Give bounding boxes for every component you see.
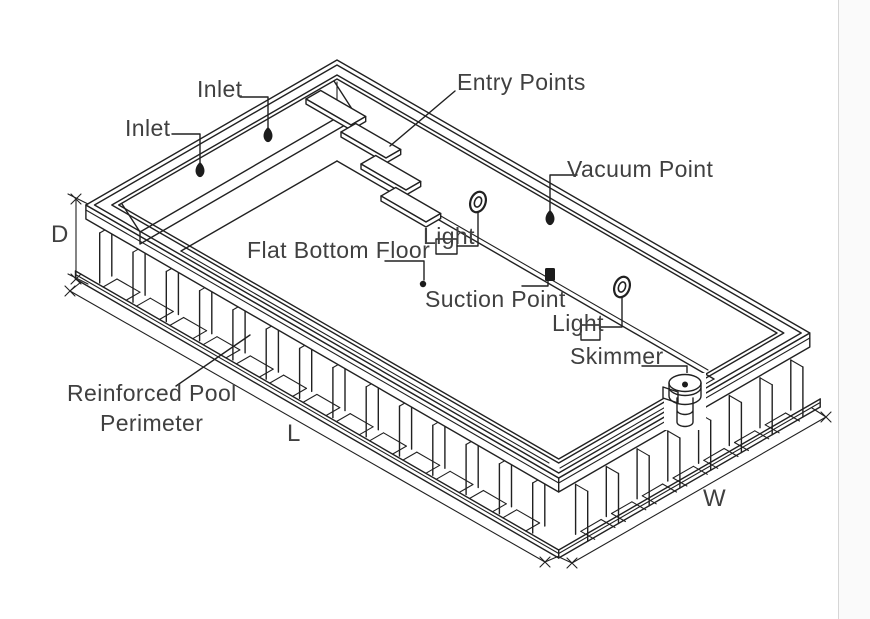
rib-line	[517, 510, 540, 523]
rib-line	[729, 396, 741, 403]
rib-line	[436, 471, 450, 479]
rib-line	[217, 337, 240, 350]
rib-line	[250, 356, 273, 369]
light-lower-label: Light	[552, 310, 604, 336]
rib-line	[637, 449, 649, 456]
inlet-left-label: Inlet	[125, 115, 171, 141]
rib-line	[370, 433, 384, 441]
rib-line	[117, 279, 140, 292]
flat-bottom-floor-label: Flat Bottom Floor	[247, 237, 430, 263]
pool-diagram-page: Inlet Inlet Entry Points Vacuum Point Fl…	[0, 0, 870, 619]
rib-line	[576, 484, 588, 491]
reinforced-pool-label-line1: Reinforced Pool	[67, 380, 237, 406]
suction-marker-icon	[545, 268, 555, 281]
rib-line	[203, 337, 217, 345]
rib-line	[581, 520, 601, 532]
rib-line	[673, 466, 693, 478]
entry-points-label: Entry Points	[457, 69, 586, 95]
reinforced-pool-label-line2: Perimeter	[100, 410, 203, 436]
rib-line	[350, 414, 373, 427]
skimmer-lid-knob	[682, 382, 688, 388]
rib-line	[136, 298, 150, 306]
rib-line	[668, 431, 680, 438]
length-dimension-label: L	[287, 420, 301, 447]
suction-point-label: Suction Point	[425, 286, 566, 312]
skimmer-label: Skimmer	[570, 343, 664, 369]
rib-line	[450, 471, 473, 484]
rib-line	[170, 318, 184, 326]
rib-line	[384, 433, 407, 446]
rib-line	[735, 431, 755, 443]
pool-isometric-drawing: Inlet Inlet Entry Points Vacuum Point Fl…	[0, 0, 870, 619]
rib-line	[704, 449, 724, 461]
dimension-line-depth	[68, 194, 88, 284]
rib-line	[236, 356, 250, 364]
rib-line	[417, 452, 440, 465]
rib-line	[470, 491, 484, 499]
rib-line	[336, 414, 350, 422]
rib-line	[317, 394, 340, 407]
depth-dimension-label: D	[51, 221, 69, 248]
rib-line	[642, 484, 662, 496]
rib-line	[103, 279, 117, 287]
rib-line	[791, 360, 803, 367]
rib-line	[303, 394, 317, 402]
rib-line	[483, 491, 506, 504]
vacuum-point-label: Vacuum Point	[567, 156, 713, 182]
right-edge-panel	[838, 0, 870, 619]
rib-line	[403, 452, 417, 460]
rib-line	[284, 375, 307, 388]
rib-line	[606, 467, 618, 474]
rib-line	[765, 413, 785, 425]
rib-line	[760, 378, 772, 385]
light-upper-label: Light	[423, 223, 475, 249]
width-dimension-label: W	[703, 485, 726, 512]
rib-line	[270, 375, 284, 383]
rib-line	[503, 510, 517, 518]
skimmer-icon	[663, 373, 706, 430]
inlet-top-label: Inlet	[197, 76, 243, 102]
rib-line	[612, 502, 632, 514]
rib-line	[150, 298, 173, 311]
rib-line	[184, 318, 207, 331]
